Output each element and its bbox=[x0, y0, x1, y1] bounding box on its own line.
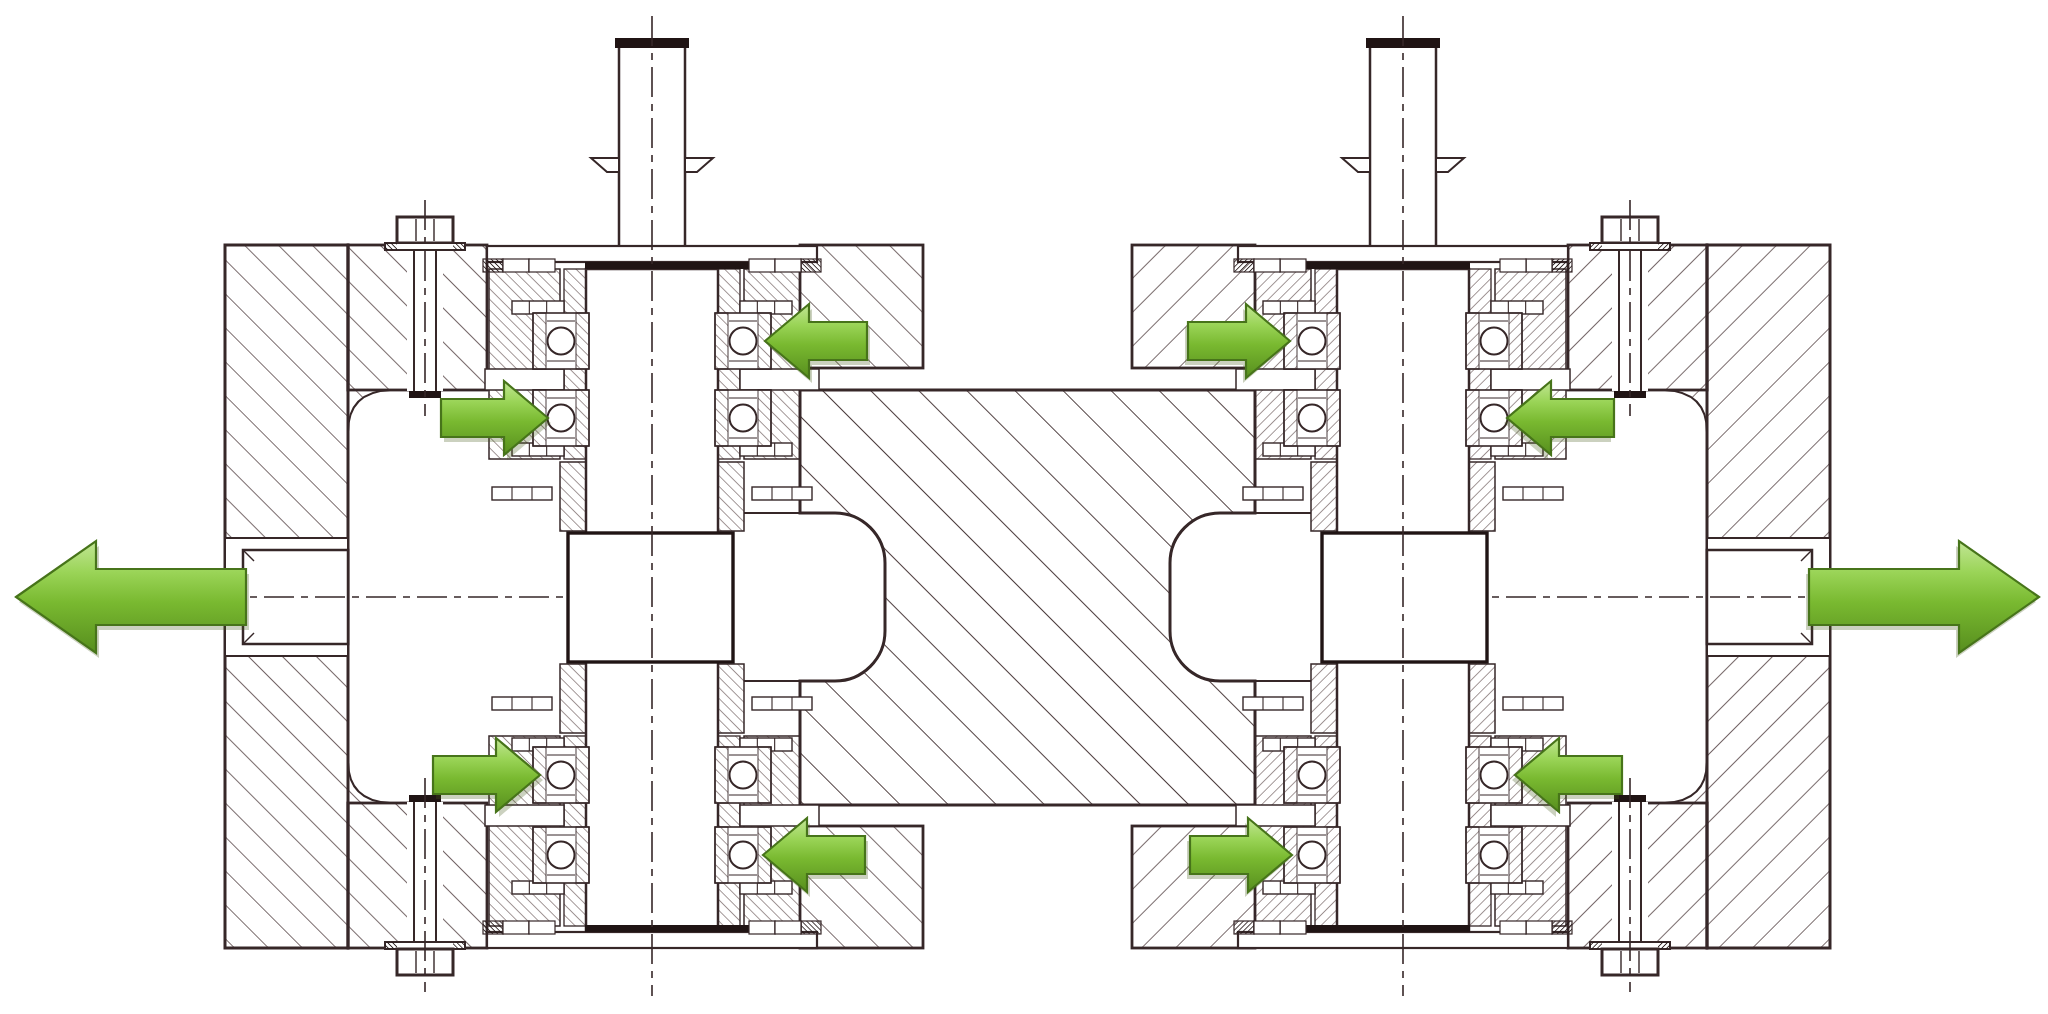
cage-strip bbox=[512, 301, 564, 314]
ball-bearing-row3-right bbox=[715, 747, 771, 803]
part bbox=[775, 921, 801, 934]
part bbox=[749, 921, 775, 934]
part bbox=[529, 259, 555, 272]
cage-strip bbox=[492, 487, 552, 500]
part bbox=[529, 921, 555, 934]
part bbox=[503, 259, 529, 272]
bearing-ball bbox=[730, 762, 757, 789]
split-band bbox=[485, 369, 564, 390]
bearing-ball bbox=[548, 328, 575, 355]
part bbox=[503, 921, 529, 934]
bearing-ball bbox=[730, 405, 757, 432]
technical-drawing bbox=[0, 0, 2048, 1014]
ball-bearing-row1-right bbox=[715, 313, 771, 369]
cage-strip bbox=[492, 697, 552, 710]
part bbox=[749, 259, 775, 272]
ball-bearing-row4-left bbox=[533, 827, 589, 883]
cage-strip bbox=[740, 301, 792, 314]
bearing-ball bbox=[548, 762, 575, 789]
ball-bearing-row1-left bbox=[533, 313, 589, 369]
cage-strip bbox=[752, 487, 812, 500]
bearing-ball bbox=[548, 842, 575, 869]
bearing-ball bbox=[730, 842, 757, 869]
shaft-drum bbox=[568, 533, 733, 662]
bearing-ball bbox=[548, 405, 575, 432]
ball-bearing-row2-right bbox=[715, 390, 771, 446]
bearing-ball bbox=[730, 328, 757, 355]
part bbox=[775, 259, 801, 272]
cage-strip bbox=[752, 697, 812, 710]
cross-section-canvas bbox=[0, 0, 2048, 1014]
